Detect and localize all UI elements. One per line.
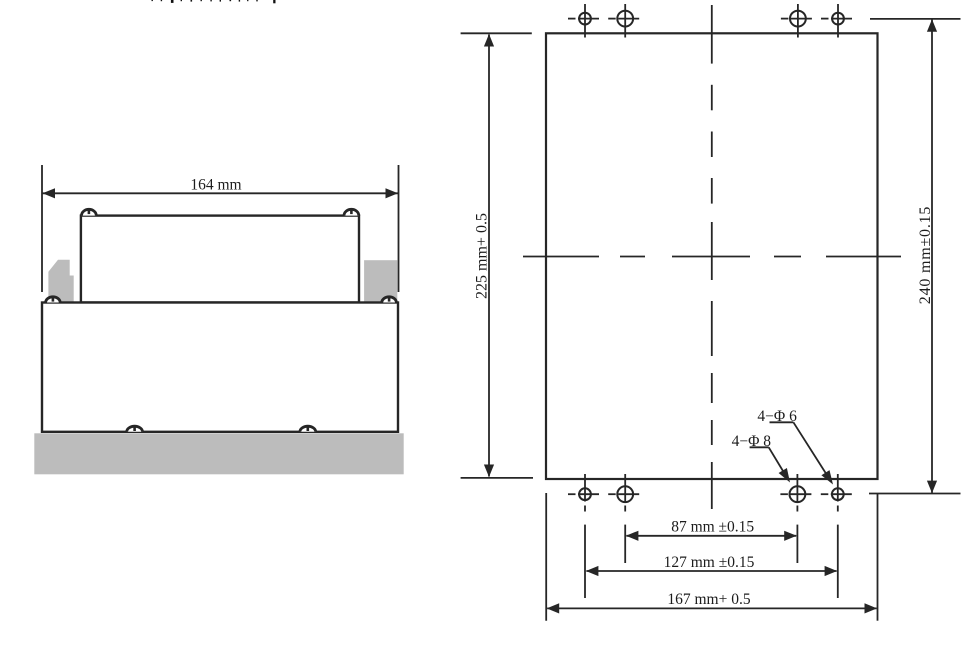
svg-text:240 mm±0.15: 240 mm±0.15 [917, 206, 934, 304]
svg-text:127 mm ±0.15: 127 mm ±0.15 [664, 554, 755, 571]
svg-text:164 mm: 164 mm [190, 177, 241, 194]
svg-text:87 mm ±0.15: 87 mm ±0.15 [671, 519, 754, 536]
svg-text:167 mm+ 0.5: 167 mm+ 0.5 [667, 591, 750, 608]
svg-text:225 mm+ 0.5: 225 mm+ 0.5 [474, 213, 491, 299]
